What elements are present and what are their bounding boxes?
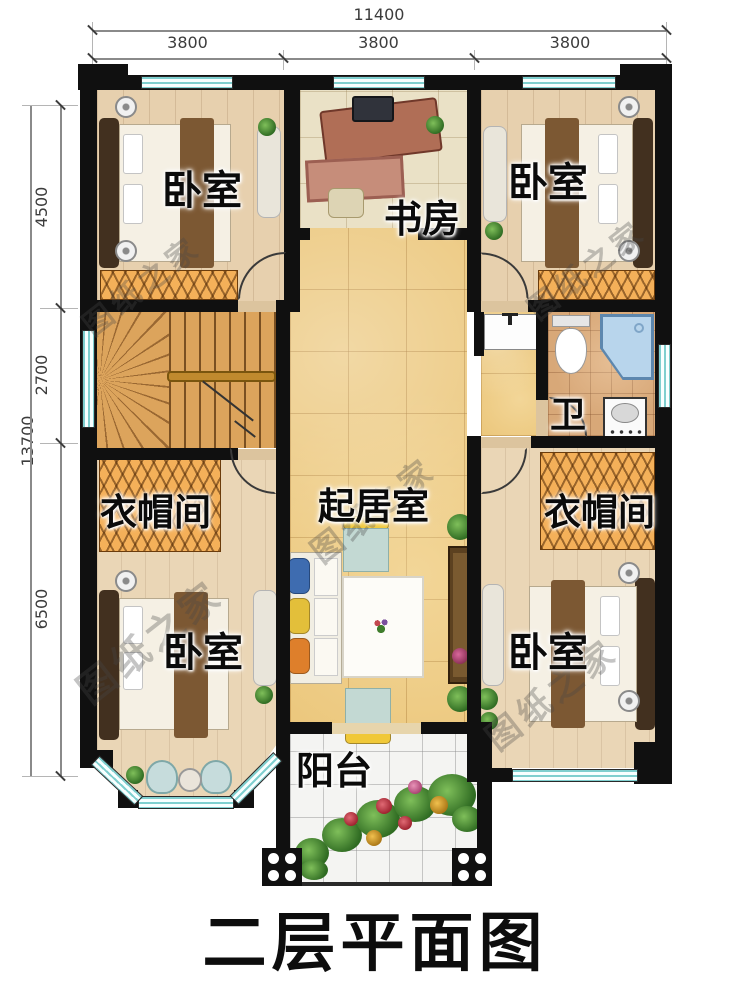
- column-icon: [262, 848, 302, 886]
- flower-icon: [398, 816, 412, 830]
- room-label-bath: 卫: [550, 386, 586, 438]
- shower-drain-icon: [634, 323, 644, 333]
- pillow-icon: [598, 134, 618, 174]
- room-label-study: 书房: [384, 188, 460, 243]
- door-threshold: [481, 437, 531, 448]
- column-dot: [285, 853, 296, 864]
- sofa-seat-icon: [314, 638, 338, 676]
- bay-chair-icon: [200, 760, 232, 794]
- window: [82, 330, 95, 428]
- flower-icon: [366, 830, 382, 846]
- nightstand-icon: [618, 96, 640, 118]
- chair-icon: [328, 188, 364, 218]
- window: [658, 344, 671, 408]
- pillow-icon: [123, 184, 143, 224]
- room-label-bedroom-top-right: 卧室: [508, 150, 588, 208]
- room-label-living: 起居室: [318, 476, 429, 530]
- dim-top-seg-3: 3800: [474, 34, 666, 52]
- wall: [284, 90, 300, 300]
- flower-icon: [452, 648, 468, 664]
- plant-icon: [255, 686, 273, 704]
- dim-top-seg-2: 3800: [283, 34, 474, 52]
- nightstand-icon: [618, 690, 640, 712]
- dim-ext: [22, 105, 78, 106]
- column-dot: [268, 853, 279, 864]
- sofa-cushion-icon: [288, 558, 310, 594]
- column-dot: [475, 870, 486, 881]
- room-label-bedroom-bottom-right: 卧室: [508, 620, 588, 678]
- dim-line: [92, 30, 666, 32]
- flower-icon: [376, 798, 392, 814]
- column-dot: [458, 853, 469, 864]
- pillow-icon: [600, 596, 620, 636]
- flower-icon: [344, 812, 358, 826]
- room-label-bedroom-top-left: 卧室: [162, 158, 242, 216]
- flower-icon: [408, 780, 422, 794]
- plant-icon: [258, 118, 276, 136]
- nightstand-icon: [618, 562, 640, 584]
- wall: [655, 75, 672, 770]
- room-label-balcony: 阳台: [296, 740, 372, 795]
- column-icon: [452, 848, 492, 886]
- window: [141, 76, 233, 89]
- chaise-icon: [257, 126, 281, 218]
- column-dot: [475, 853, 486, 864]
- wall: [467, 90, 481, 300]
- flower-icon: [300, 860, 328, 880]
- plant-icon: [426, 116, 444, 134]
- wall: [276, 300, 290, 734]
- bay-table-icon: [178, 768, 202, 792]
- dim-left-seg-2: 2700: [33, 347, 51, 403]
- window: [138, 796, 234, 809]
- sofa-cushion-icon: [288, 638, 310, 674]
- nightstand-icon: [115, 570, 137, 592]
- dim-top-seg-1: 3800: [92, 34, 283, 52]
- column-dot: [285, 870, 296, 881]
- flower-icon: [372, 616, 390, 634]
- column-dot: [458, 870, 469, 881]
- wall: [634, 742, 672, 784]
- door-threshold: [332, 723, 421, 734]
- plant-icon: [126, 766, 144, 784]
- window: [512, 769, 638, 782]
- dim-top-total: 11400: [92, 6, 666, 24]
- dim-ext: [22, 776, 78, 777]
- plant-icon: [485, 222, 503, 240]
- wall: [421, 722, 481, 734]
- stair-handrail: [167, 371, 276, 382]
- faucet-icon: [502, 313, 518, 316]
- washer-icon: [611, 403, 639, 423]
- bay-chair-icon: [146, 760, 178, 794]
- dim-line: [92, 58, 666, 60]
- room-label-cloakroom-right: 衣帽间: [544, 482, 655, 536]
- wall: [474, 312, 484, 356]
- nightstand-icon: [115, 96, 137, 118]
- wall: [284, 228, 310, 240]
- flower-icon: [430, 796, 448, 814]
- column-dot: [268, 870, 279, 881]
- window: [333, 76, 425, 89]
- wall: [276, 722, 290, 864]
- pillow-icon: [123, 134, 143, 174]
- chaise-icon: [253, 590, 277, 686]
- room-label-bedroom-bottom-left: 卧室: [163, 620, 243, 678]
- nightstand-icon: [115, 240, 137, 262]
- dim-left-seg-3: 6500: [33, 581, 51, 637]
- sofa-cushion-icon: [288, 598, 310, 634]
- window: [522, 76, 616, 89]
- computer-icon: [352, 96, 394, 122]
- wall: [467, 300, 481, 312]
- bench-icon: [482, 584, 504, 686]
- sofa-seat-icon: [314, 598, 338, 636]
- chaise-icon: [483, 126, 507, 222]
- toilet-icon: [555, 328, 587, 374]
- wall: [80, 448, 238, 460]
- dim-left-seg-1: 4500: [33, 179, 51, 235]
- page-title: 二层平面图: [0, 892, 750, 984]
- door-threshold: [481, 301, 528, 312]
- balcony-edge: [290, 882, 477, 886]
- door-threshold: [536, 400, 548, 436]
- floor-plan-page: 11400 3800 3800 3800 13700 4500 2700 650…: [0, 0, 750, 991]
- washer-knobs-icon: [608, 429, 642, 435]
- room-label-cloakroom-left: 衣帽间: [100, 482, 211, 536]
- dim-left-total: 13700: [19, 409, 37, 473]
